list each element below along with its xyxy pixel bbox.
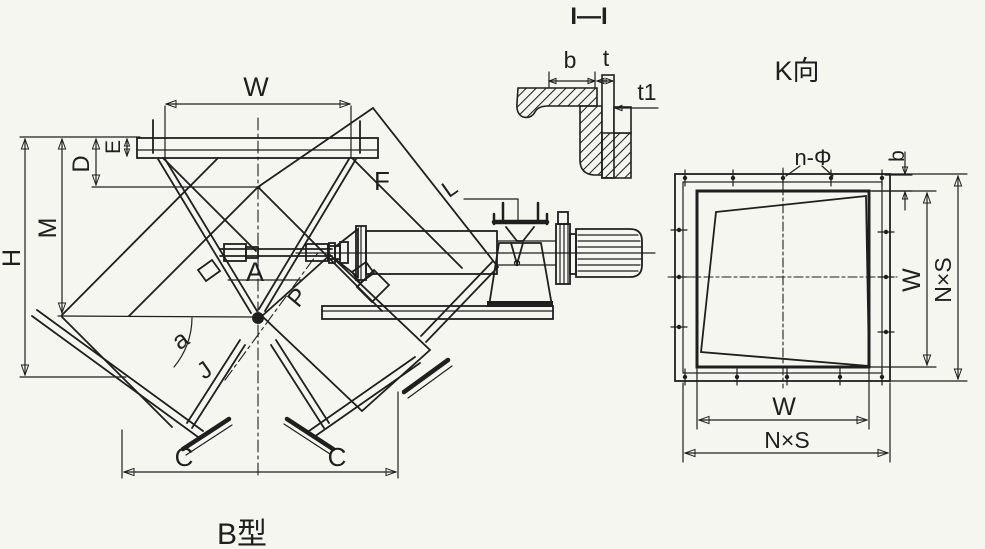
k-label-nxs-bottom: N×S xyxy=(764,427,809,453)
l-leader-line xyxy=(464,199,518,221)
dim-label-c-left: C xyxy=(175,442,194,472)
k-view: K向 n-Φ xyxy=(668,56,967,462)
flange-leg-section xyxy=(580,106,602,175)
left-outlet-chute xyxy=(32,310,245,455)
k-flap-plate xyxy=(701,196,869,366)
k-label-w-right: W xyxy=(898,268,926,292)
k-dim-b: b xyxy=(872,150,912,210)
k-label-w-bottom: W xyxy=(772,393,796,421)
k-view-title: K向 xyxy=(774,56,819,86)
left-dimensions: H M D E xyxy=(0,137,260,377)
dim-label-m: M xyxy=(34,218,62,239)
section-label-t: t xyxy=(603,45,610,71)
side-outlet-flange xyxy=(404,360,448,392)
dim-label-d: D xyxy=(68,155,95,172)
base-plate xyxy=(322,306,553,319)
section-title: I—I xyxy=(570,3,607,30)
dim-label-h: H xyxy=(0,249,26,267)
label-p: P xyxy=(282,283,313,313)
label-angle-a: a xyxy=(167,325,195,356)
view-caption: B型 xyxy=(217,518,267,549)
dim-label-w: W xyxy=(243,72,269,102)
section-label-b: b xyxy=(564,47,577,73)
drawing-sheet: H M D E W xyxy=(0,0,985,549)
section-view: I—I b t t1 xyxy=(517,3,658,178)
actuator-assembly: L xyxy=(296,174,655,319)
pivot-point xyxy=(252,312,264,324)
engineering-drawing: H M D E W xyxy=(0,0,985,549)
flap-axis-centerline xyxy=(225,250,320,380)
right-outlet-flange xyxy=(287,419,333,449)
k-label-b: b xyxy=(886,150,909,162)
label-l: L xyxy=(437,174,463,203)
label-f: F xyxy=(374,166,390,196)
main-view: H M D E W xyxy=(0,72,655,549)
bearing-left xyxy=(198,260,220,281)
section-label-t1: t1 xyxy=(637,79,656,105)
label-angle-j: J xyxy=(192,356,217,385)
dim-label-c-right: C xyxy=(328,442,347,472)
angle-annotation: a J xyxy=(167,318,218,385)
k-label-nxs-right: N×S xyxy=(930,257,956,302)
label-a-center: A xyxy=(246,257,264,287)
top-width-dimension: W xyxy=(166,72,350,104)
dim-label-e: E xyxy=(102,140,125,154)
